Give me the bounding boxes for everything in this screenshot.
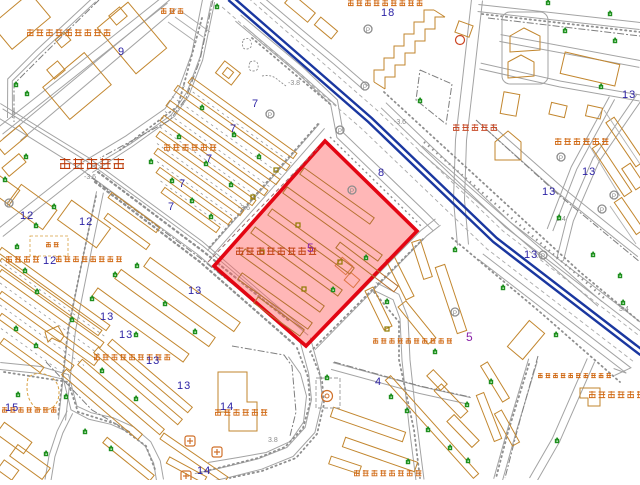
svg-text:12: 12 [79,216,93,228]
svg-text:12: 12 [20,210,34,222]
svg-text:7: 7 [179,178,186,190]
svg-text:P: P [559,155,563,162]
svg-text:4: 4 [375,376,382,388]
svg-text:-3.6: -3.6 [84,174,96,181]
svg-text:13: 13 [119,329,133,341]
svg-text:13: 13 [524,249,538,261]
svg-text:-3.8: -3.8 [288,80,300,87]
svg-text:P: P [612,193,616,200]
svg-text:P: P [541,253,545,260]
svg-text:12: 12 [43,255,57,267]
svg-text:P: P [453,310,457,317]
svg-text:13: 13 [100,311,114,323]
svg-text:14: 14 [220,401,234,413]
svg-text:-3.6: -3.6 [238,205,250,212]
svg-text:13: 13 [188,285,202,297]
svg-text:18: 18 [381,7,395,19]
svg-text:7: 7 [168,201,175,213]
svg-text:3.4: 3.4 [619,306,629,313]
svg-text:13: 13 [542,186,556,198]
svg-text:5: 5 [307,241,315,255]
svg-text:P: P [363,84,367,91]
svg-text:13: 13 [622,89,636,101]
svg-text:P: P [338,128,342,135]
svg-text:P: P [7,201,11,208]
svg-text:3.8: 3.8 [268,437,278,444]
svg-text:9: 9 [118,46,125,58]
svg-text:7: 7 [252,98,259,110]
svg-text:13: 13 [177,380,191,392]
svg-text:P: P [268,112,272,119]
svg-text:P: P [350,188,354,195]
svg-text:P: P [600,207,604,214]
svg-text:15: 15 [5,402,19,414]
svg-text:14: 14 [197,465,211,477]
svg-text:8: 8 [378,167,385,179]
svg-text:P: P [366,27,370,34]
svg-text:5: 5 [466,330,474,344]
svg-text:13: 13 [582,166,596,178]
svg-text:-3.6: -3.6 [394,119,406,126]
svg-text:13: 13 [146,355,160,367]
